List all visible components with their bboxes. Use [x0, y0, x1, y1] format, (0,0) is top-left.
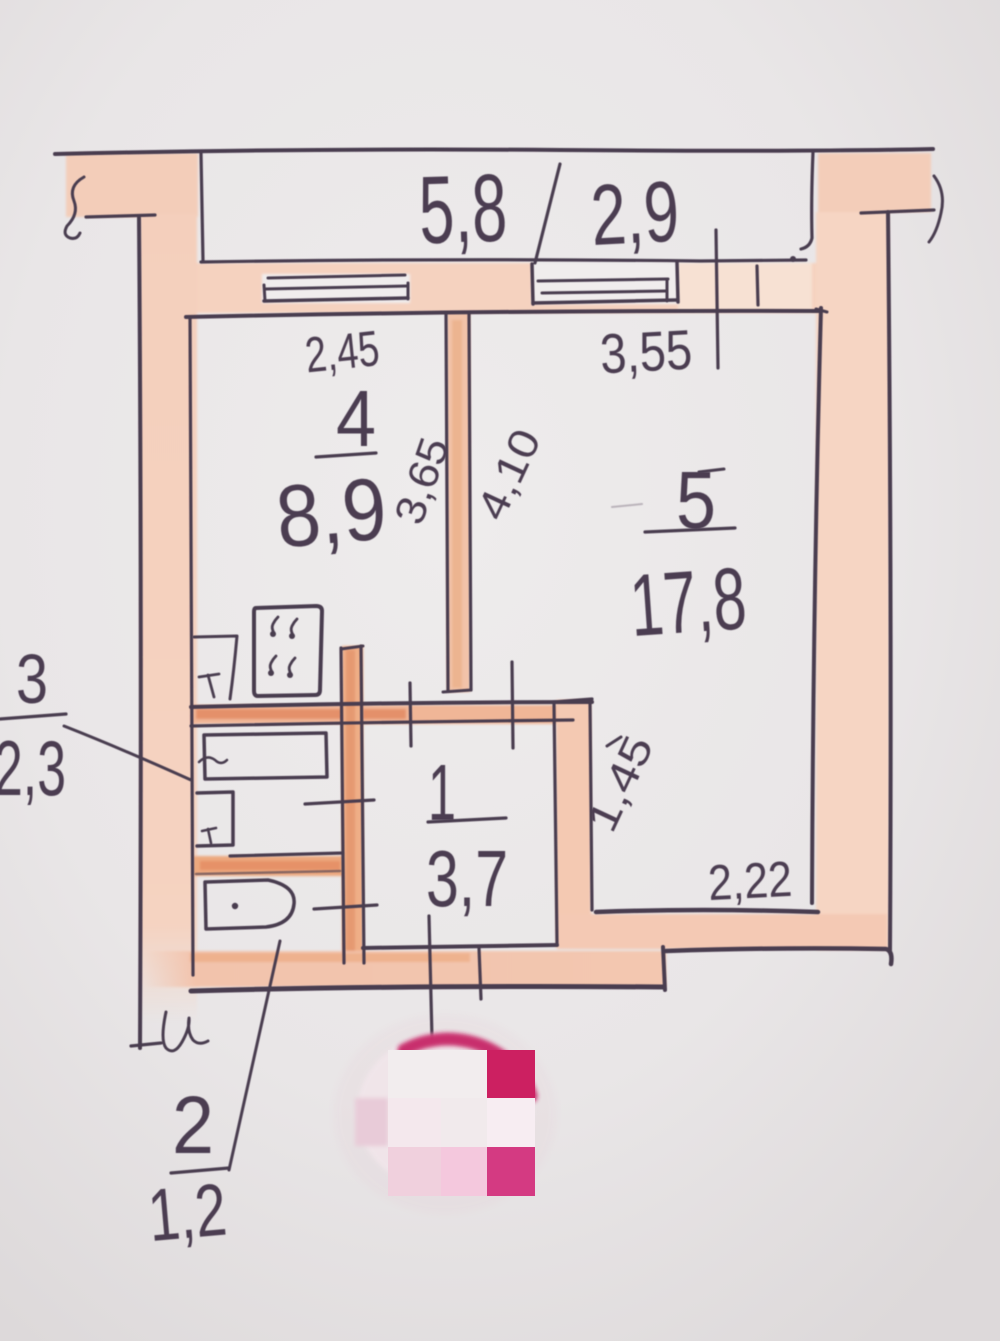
svg-text:8,9: 8,9 [272, 458, 390, 566]
svg-text:5: 5 [676, 455, 716, 546]
svg-text:2: 2 [172, 1080, 214, 1171]
svg-text:2,9: 2,9 [588, 164, 681, 264]
svg-text:5,8: 5,8 [417, 154, 509, 264]
svg-text:3: 3 [16, 640, 48, 718]
svg-text:1,2: 1,2 [145, 1168, 230, 1257]
svg-text:3,7: 3,7 [426, 834, 508, 923]
svg-text:17,8: 17,8 [627, 548, 750, 655]
svg-text:3,55: 3,55 [598, 318, 693, 386]
svg-text:1: 1 [428, 748, 456, 837]
svg-text:4: 4 [336, 374, 376, 463]
svg-text:2,22: 2,22 [707, 851, 794, 911]
svg-text:2,3: 2,3 [0, 724, 66, 812]
